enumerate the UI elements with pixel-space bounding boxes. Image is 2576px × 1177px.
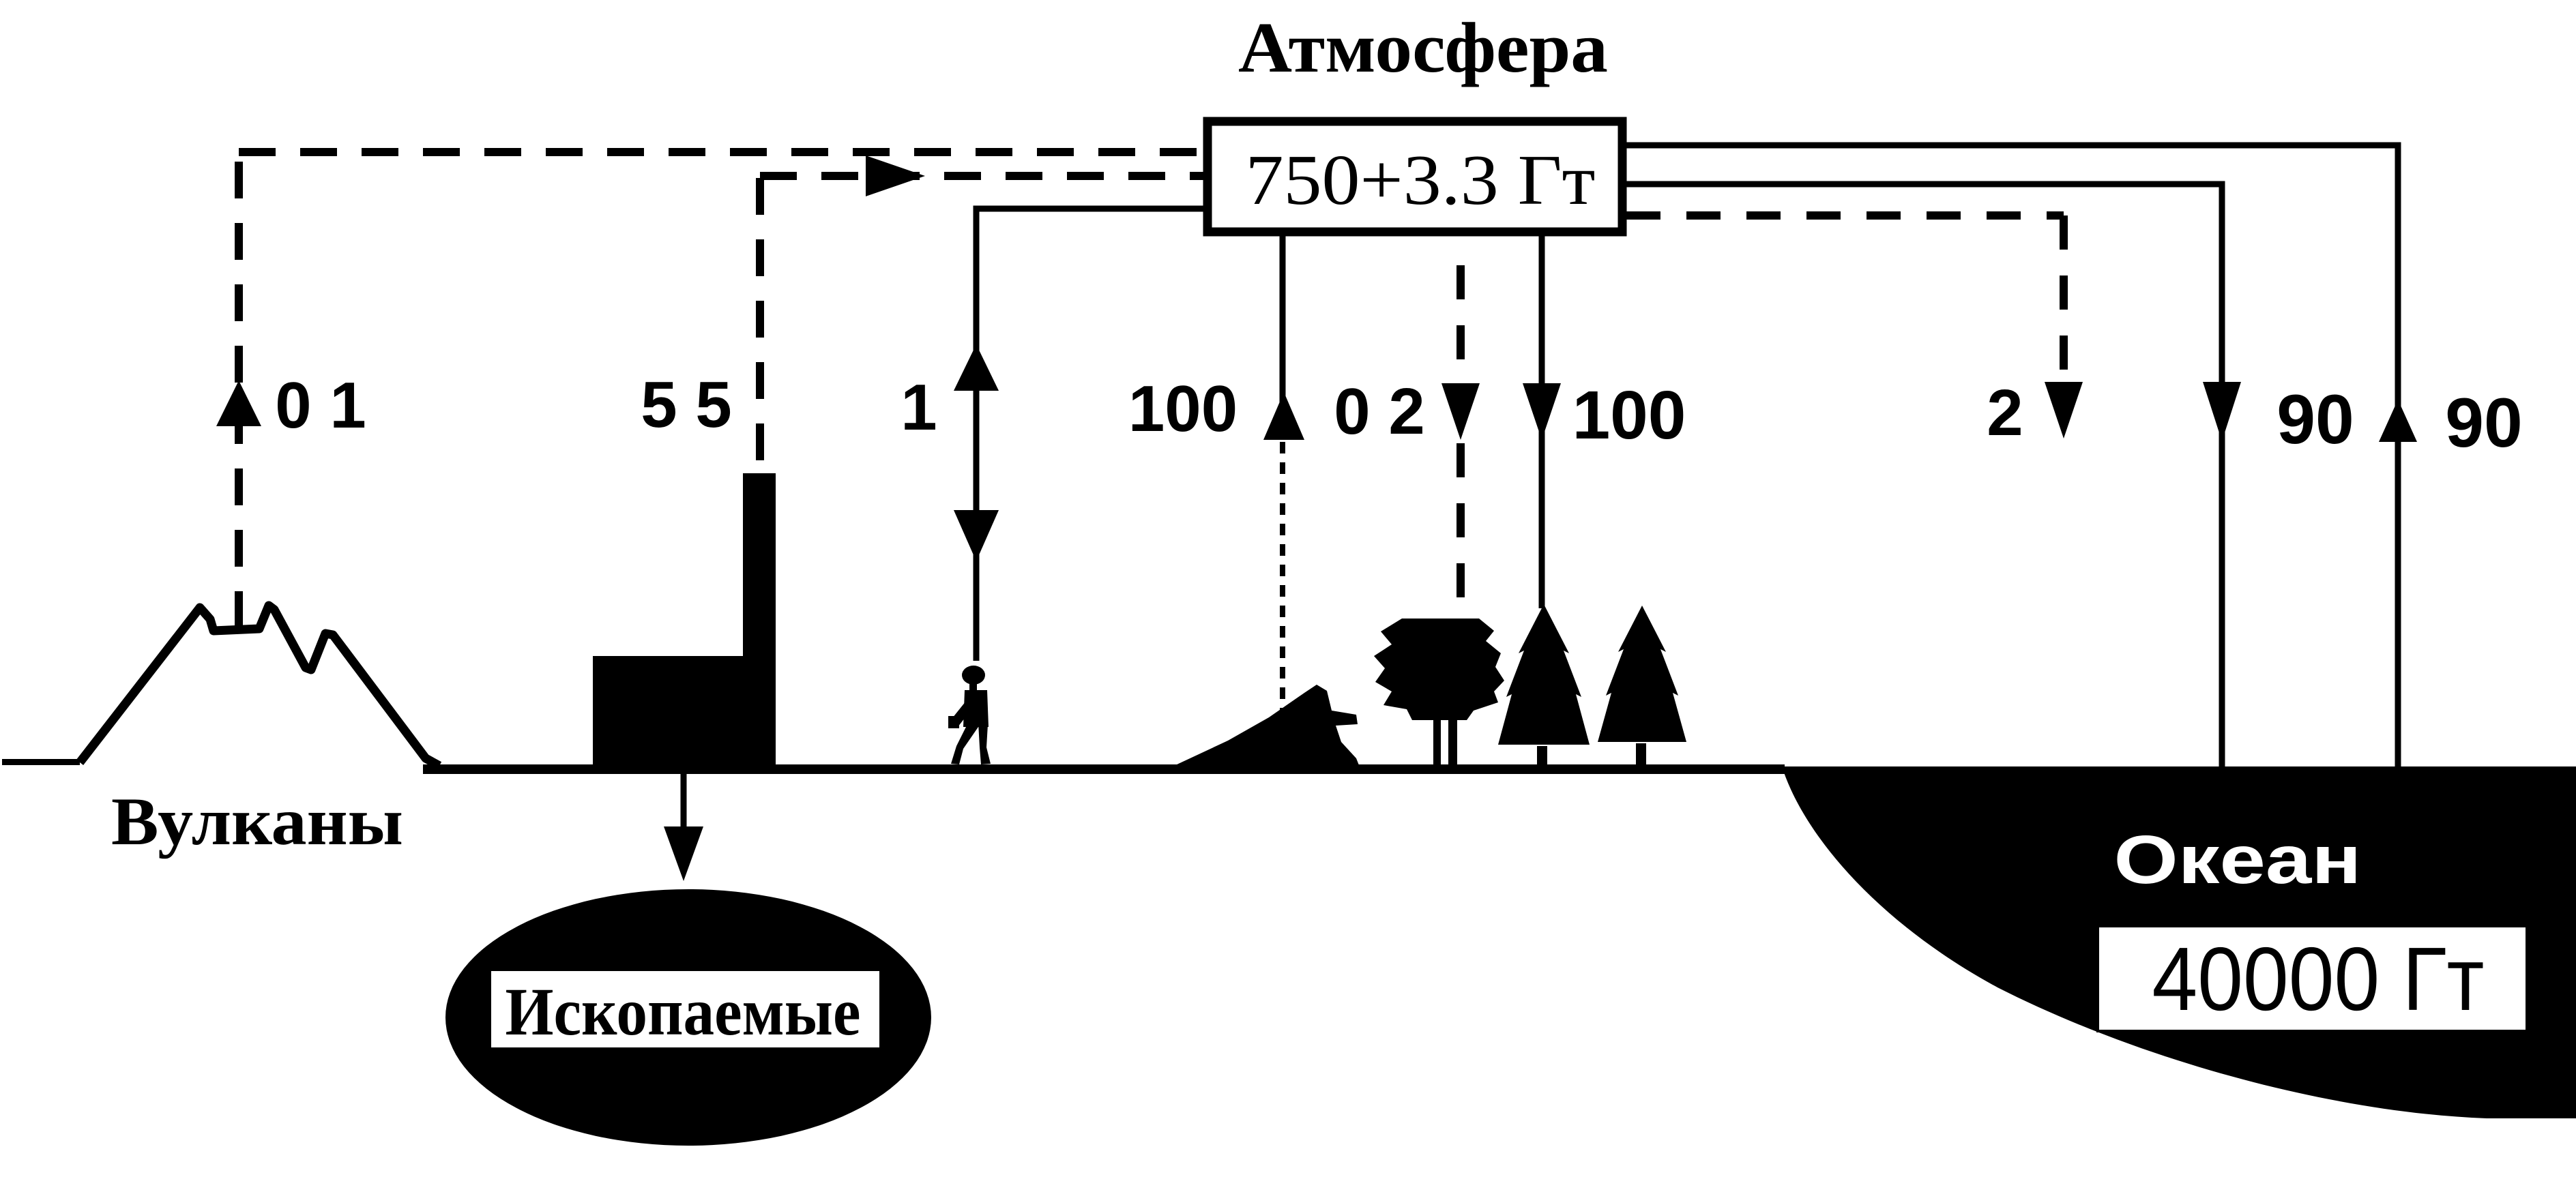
svg-text:100: 100 xyxy=(1572,377,1686,453)
svg-text:1: 1 xyxy=(901,371,937,444)
svg-text:Атмосфера: Атмосфера xyxy=(1238,8,1608,87)
svg-text:2: 2 xyxy=(1987,376,2023,449)
svg-text:90: 90 xyxy=(2445,384,2522,462)
svg-text:Океан: Океан xyxy=(2114,822,2362,898)
svg-text:Вулканы: Вулканы xyxy=(111,784,403,859)
svg-text:90: 90 xyxy=(2277,381,2354,458)
svg-text:0 2: 0 2 xyxy=(1334,375,1424,448)
svg-text:Ископаемые: Ископаемые xyxy=(506,974,861,1049)
svg-text:100: 100 xyxy=(1128,372,1238,445)
svg-text:0 1: 0 1 xyxy=(275,369,366,442)
svg-text:40000 Гт: 40000 Гт xyxy=(2152,929,2485,1029)
svg-text:5 5: 5 5 xyxy=(641,368,731,441)
svg-text:750+3.3 Гт: 750+3.3 Гт xyxy=(1246,140,1596,220)
